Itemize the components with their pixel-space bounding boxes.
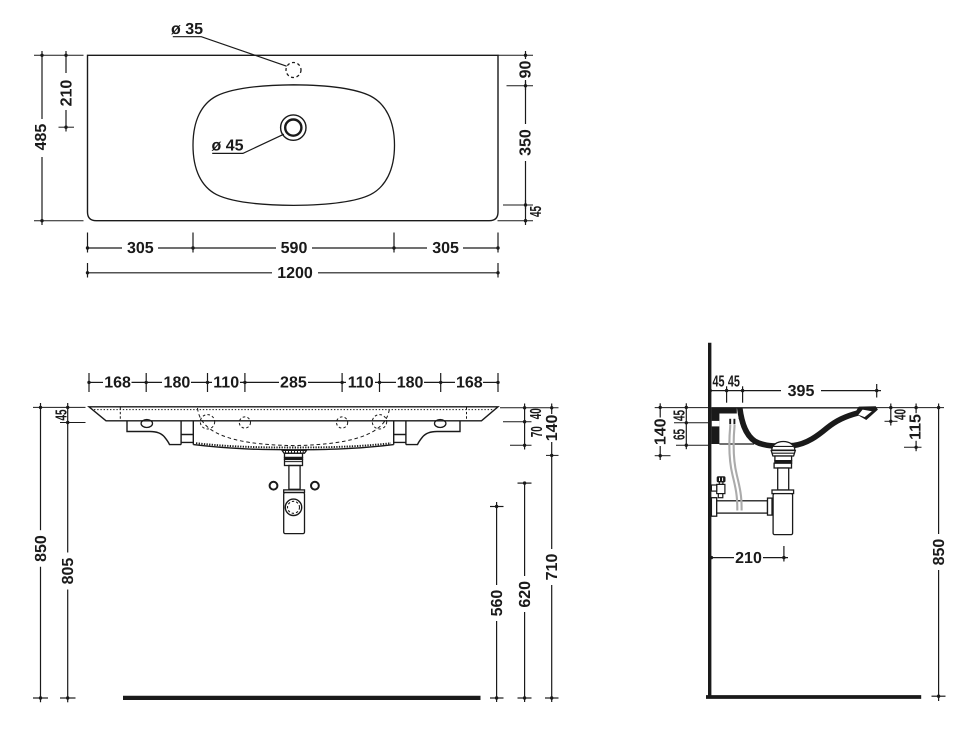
svg-text:485: 485 — [33, 124, 50, 151]
svg-text:168: 168 — [456, 375, 483, 392]
svg-text:850: 850 — [33, 535, 50, 562]
svg-text:285: 285 — [280, 375, 307, 392]
svg-text:305: 305 — [432, 240, 459, 257]
svg-text:115: 115 — [908, 414, 925, 440]
svg-text:ø 45: ø 45 — [211, 138, 243, 155]
svg-text:90: 90 — [518, 61, 535, 79]
svg-text:140: 140 — [544, 414, 561, 441]
svg-text:180: 180 — [164, 375, 191, 392]
svg-text:850: 850 — [931, 539, 948, 566]
svg-text:710: 710 — [544, 554, 561, 581]
svg-text:210: 210 — [59, 80, 76, 107]
svg-text:590: 590 — [281, 240, 308, 257]
svg-text:395: 395 — [788, 383, 815, 400]
svg-text:168: 168 — [104, 375, 131, 392]
svg-text:110: 110 — [213, 375, 239, 392]
svg-text:805: 805 — [60, 558, 77, 585]
svg-text:620: 620 — [517, 581, 534, 608]
svg-text:305: 305 — [127, 240, 154, 257]
svg-text:1200: 1200 — [277, 265, 313, 282]
svg-text:350: 350 — [518, 129, 535, 156]
svg-text:45: 45 — [728, 374, 740, 391]
svg-text:ø 35: ø 35 — [171, 21, 203, 38]
svg-text:45: 45 — [54, 409, 71, 420]
svg-text:40: 40 — [528, 408, 545, 419]
svg-text:45: 45 — [672, 410, 689, 421]
svg-text:140: 140 — [652, 418, 669, 445]
svg-text:210: 210 — [735, 550, 762, 567]
svg-text:110: 110 — [348, 375, 374, 392]
svg-text:560: 560 — [489, 590, 506, 617]
svg-text:45: 45 — [713, 374, 725, 391]
svg-text:45: 45 — [528, 206, 545, 217]
svg-text:180: 180 — [397, 375, 424, 392]
svg-text:65: 65 — [672, 429, 689, 440]
